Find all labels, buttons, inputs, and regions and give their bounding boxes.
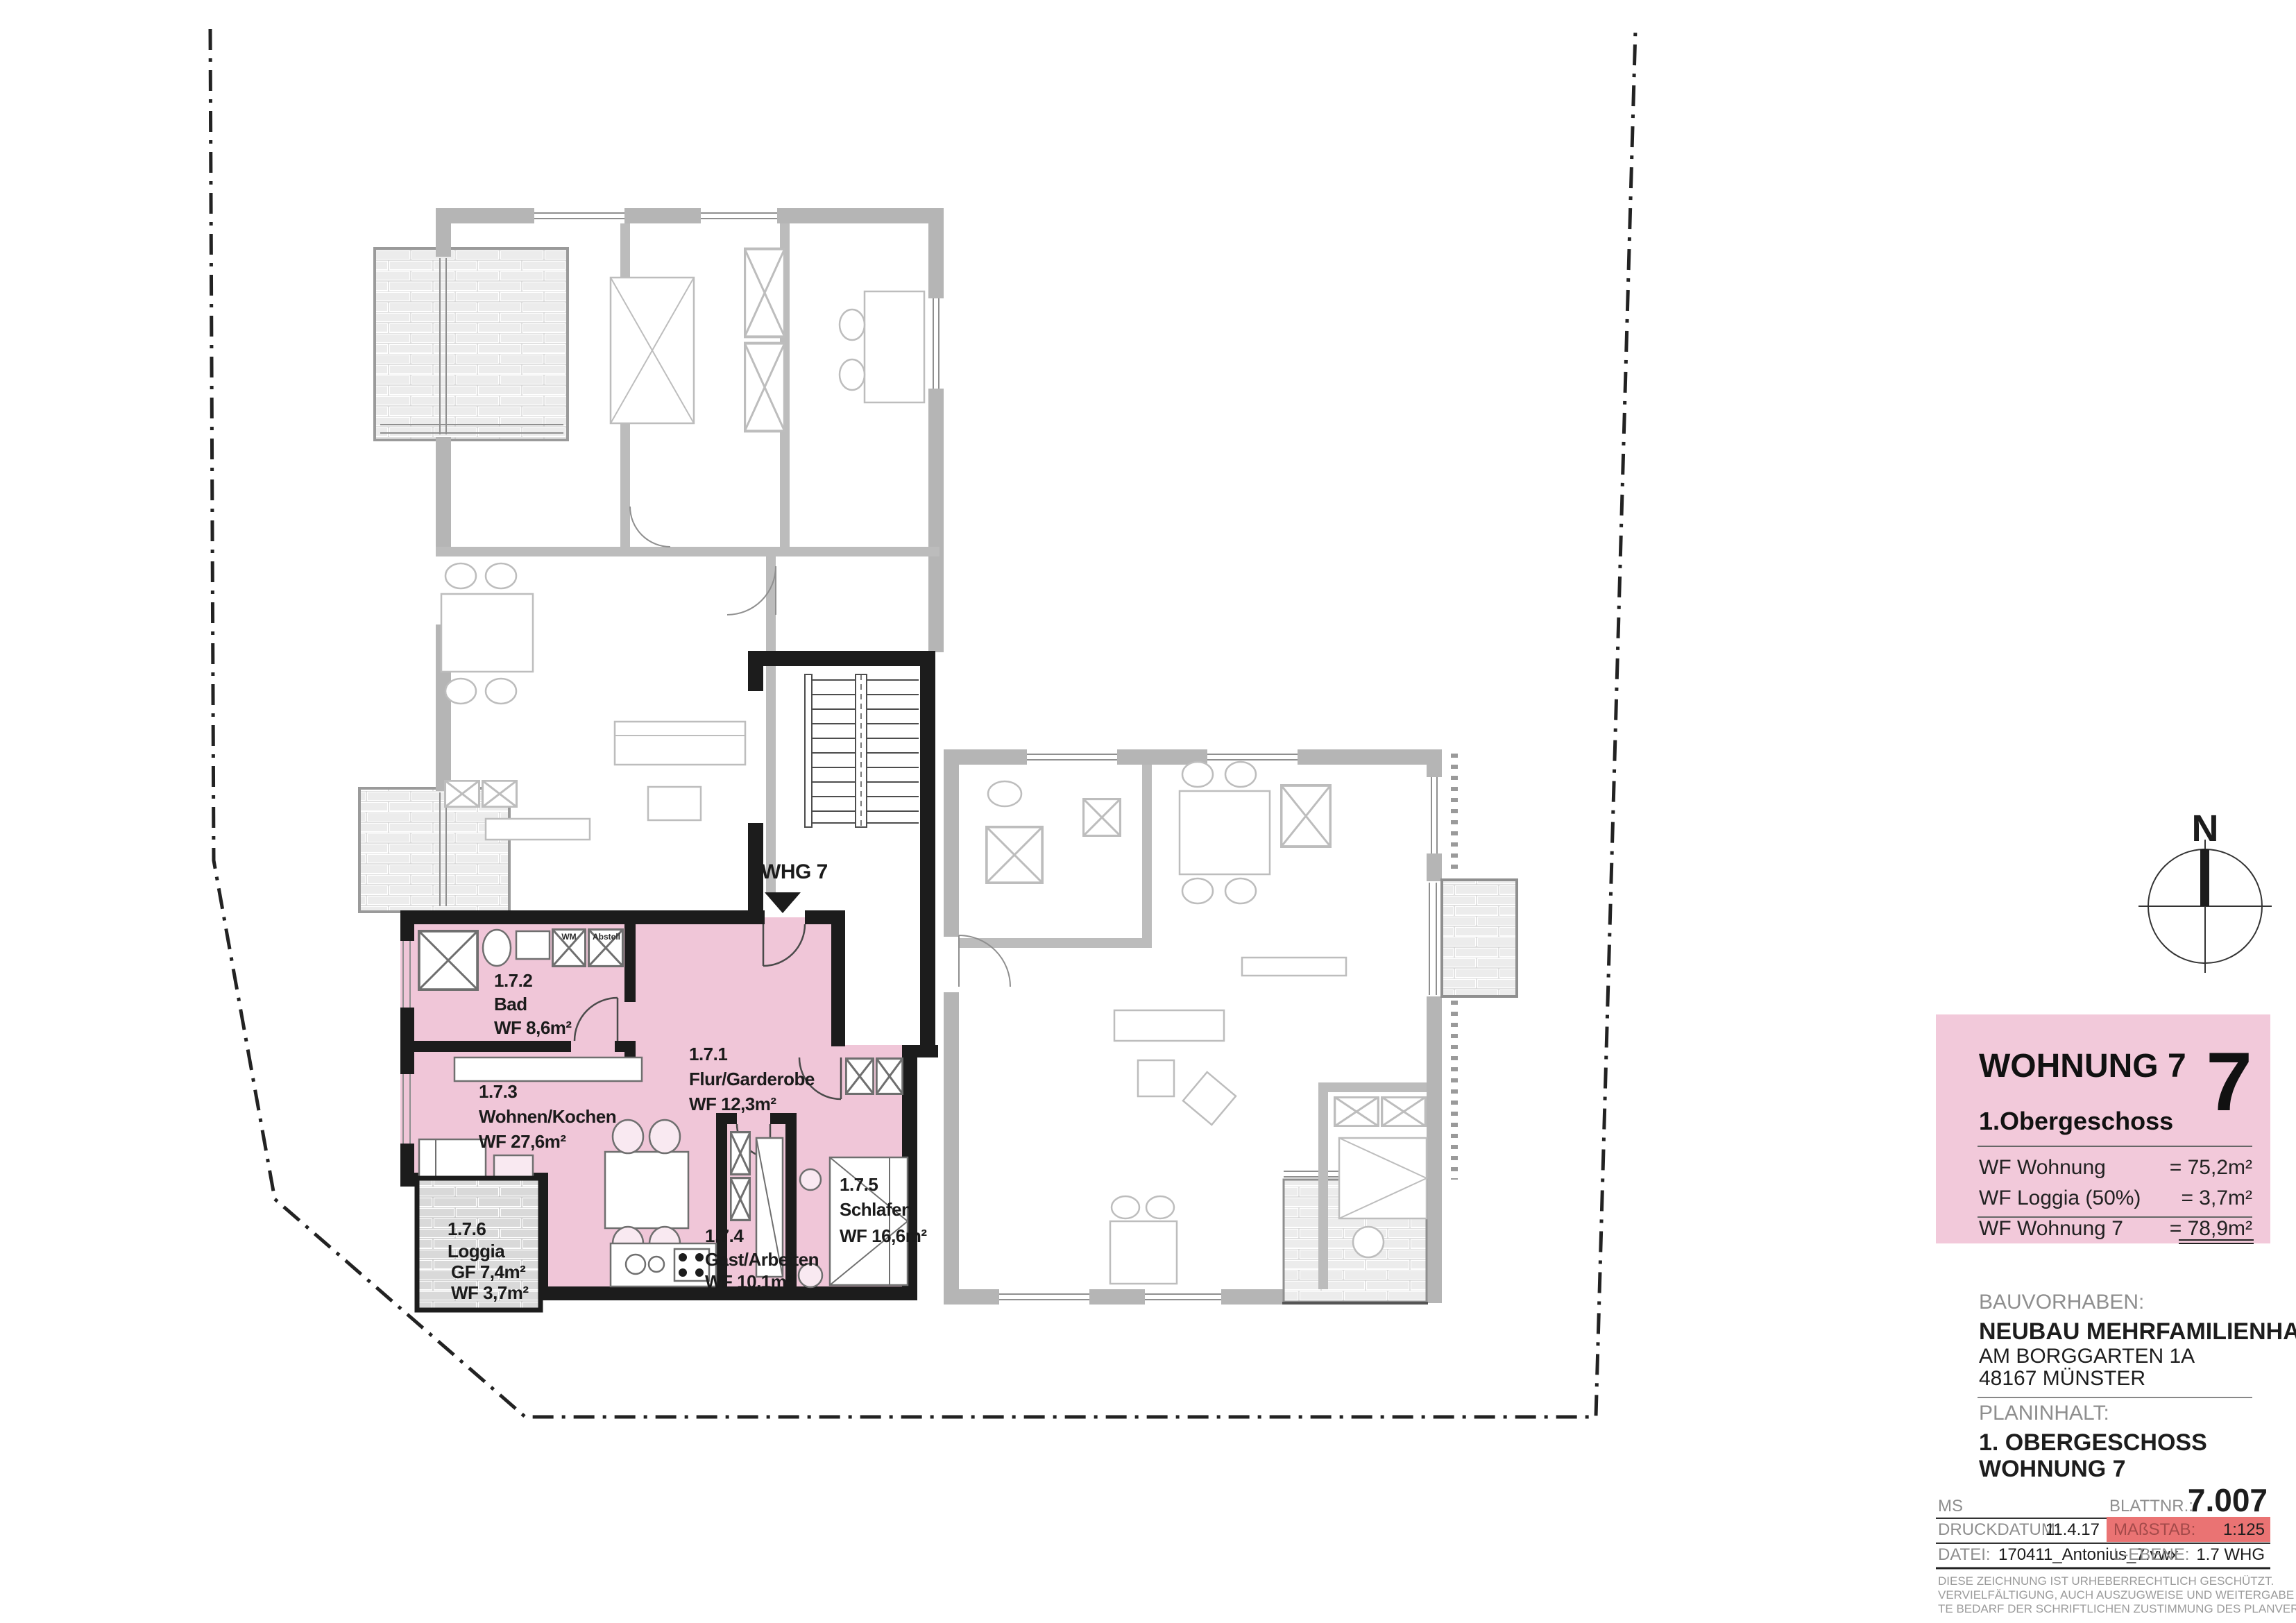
floor-plan-sheet: WM Abstell (0, 0, 2296, 1623)
apartment-7: WM Abstell (400, 860, 927, 1310)
plan-content-line1: 1. OBERGESCHOSS (1979, 1429, 2207, 1456)
inactive-apartment-right (944, 749, 1517, 1305)
room-schlafen-area: WF 16,6m² (840, 1225, 927, 1246)
north-compass-icon: N (2138, 808, 2272, 973)
massstab-label: MAßSTAB: (2114, 1520, 2195, 1539)
project-name: NEUBAU MEHRFAMILIENHAUS (1979, 1318, 2296, 1345)
room-bad-name: Bad (494, 994, 527, 1014)
lebene-value: 1.7 WHG (2196, 1545, 2265, 1564)
area-row1-label: WF Wohnung (1979, 1156, 2106, 1179)
project-info: BAUVORHABEN: NEUBAU MEHRFAMILIENHAUS AM … (1978, 1291, 2296, 1482)
copyright-line1: DIESE ZEICHNUNG IST URHEBERRECHTLICH GES… (1938, 1574, 2274, 1588)
north-label: N (2192, 808, 2219, 849)
room-loggia-name: Loggia (448, 1241, 505, 1261)
bauvorhaben-label: BAUVORHABEN: (1979, 1291, 2144, 1314)
area-row3-label: WF Wohnung 7 (1979, 1217, 2123, 1240)
room-loggia-area-wf: WF 3,7m² (451, 1282, 529, 1303)
title-block-title: WOHNUNG 7 (1979, 1048, 2186, 1085)
area-row1-value: = 75,2m² (2170, 1156, 2252, 1179)
title-block-floor: 1.Obergeschoss (1979, 1107, 2173, 1135)
room-schlafen-name: Schlafen (840, 1199, 912, 1220)
room-gast-name: Gast/Arbeiten (705, 1249, 819, 1270)
closet-abstell-label: Abstell (593, 932, 620, 942)
room-flur-name: Flur/Garderobe (689, 1069, 815, 1089)
room-gast-id: 1.7.4 (705, 1225, 744, 1246)
lebene-label: L-EBENE: (2114, 1545, 2189, 1564)
room-flur-id: 1.7.1 (689, 1044, 727, 1064)
area-row2-label: WF Loggia (50%) (1979, 1187, 2141, 1209)
room-loggia-id: 1.7.6 (448, 1218, 486, 1239)
meta-table: MS BLATTNR.: 7.007 DRUCKDATUM: 11.4.17 M… (1936, 1482, 2296, 1615)
copyright-line2: VERVIELFÄLTIGUNG, AUCH AUSZUGWEISE UND W… (1938, 1588, 2296, 1601)
blattnr-value: 7.007 (2188, 1482, 2268, 1518)
area-row3-value: = 78,9m² (2170, 1217, 2252, 1240)
druckdatum-value: 11.4.17 (2046, 1520, 2100, 1539)
copyright-line3: TE BEDARF DER SCHRIFTLICHEN ZUSTIMMUNG D… (1938, 1602, 2296, 1615)
room-loggia-area-gf: GF 7,4m² (451, 1261, 526, 1282)
room-wohnen-name: Wohnen/Kochen (479, 1106, 616, 1127)
datei-label: DATEI: (1938, 1545, 1991, 1564)
closet-wm-label: WM (561, 932, 576, 942)
room-gast-area: WF 10,1m² (705, 1271, 792, 1292)
massstab-value: 1:125 (2223, 1520, 2265, 1539)
room-flur-area: WF 12,3m² (689, 1094, 776, 1114)
druckdatum-label: DRUCKDATUM: (1938, 1520, 2060, 1539)
room-schlafen-id: 1.7.5 (840, 1174, 878, 1195)
title-block: WOHNUNG 7 7 1.Obergeschoss WF Wohnung = … (1936, 1014, 2270, 1243)
area-row2-value: = 3,7m² (2181, 1187, 2252, 1209)
title-block-number: 7 (2206, 1035, 2252, 1128)
room-wohnen-id: 1.7.3 (479, 1081, 517, 1102)
project-city: 48167 MÜNSTER (1979, 1367, 2145, 1390)
project-street: AM BORGGARTEN 1A (1979, 1345, 2195, 1368)
blattnr-label: BLATTNR.: (2109, 1497, 2193, 1515)
ms-label: MS (1938, 1497, 1963, 1515)
room-wohnen-area: WF 27,6m² (479, 1131, 566, 1152)
room-bad-id: 1.7.2 (494, 970, 532, 991)
entrance-label: WHG 7 (761, 860, 828, 883)
room-bad-area: WF 8,6m² (494, 1017, 572, 1038)
planinhalt-label: PLANINHALT: (1979, 1402, 2109, 1425)
entrance-arrow-icon (765, 892, 801, 913)
plan-content-line2: WOHNUNG 7 (1979, 1456, 2126, 1482)
